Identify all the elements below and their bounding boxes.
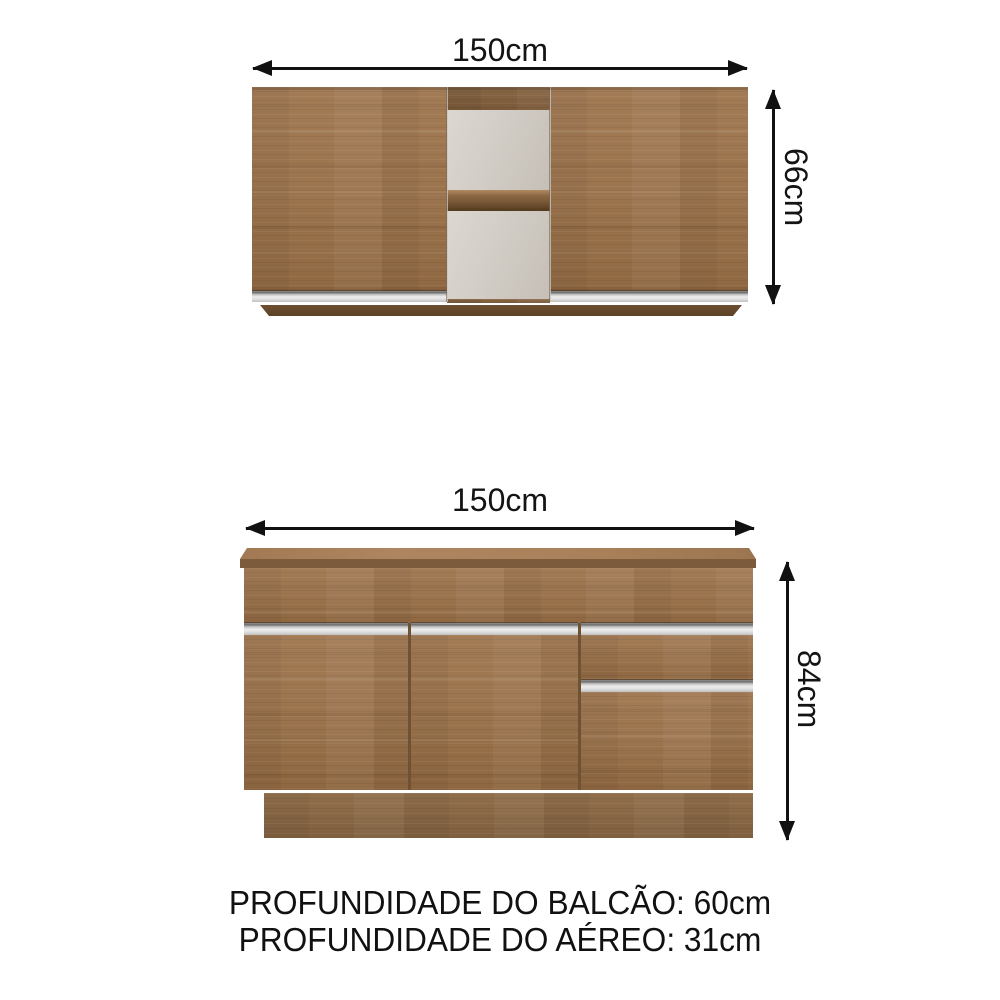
countertop-surface xyxy=(240,548,756,559)
arrow-right-head-icon xyxy=(735,520,755,536)
upper-door-seam xyxy=(549,87,551,302)
upper-height-arrow xyxy=(772,90,775,304)
lower-middle-door-handle xyxy=(411,623,578,635)
lower-left-door xyxy=(244,635,408,790)
upper-cabinet-top-edge xyxy=(252,87,748,90)
arrow-right-head-icon xyxy=(728,60,748,76)
niche-bottom-band xyxy=(447,299,550,303)
arrow-left-head-icon xyxy=(252,60,272,76)
arrow-up-head-icon xyxy=(779,561,795,581)
lower-left-door-handle xyxy=(244,623,408,635)
upper-cabinet-underside xyxy=(260,305,742,316)
plinth xyxy=(264,793,753,838)
arrow-down-head-icon xyxy=(765,285,781,305)
aereo-depth-text: PROFUNDIDADE DO AÉREO: 31cm xyxy=(20,921,980,958)
upper-left-door-handle xyxy=(252,291,447,302)
upper-open-shelves xyxy=(447,87,550,303)
lower-width-arrow xyxy=(246,527,754,530)
lower-right-section xyxy=(581,623,753,790)
lower-middle-door xyxy=(411,635,578,790)
upper-cabinet xyxy=(252,87,748,303)
lower-width-label: 150cm xyxy=(245,484,755,516)
upper-width-label: 150cm xyxy=(252,34,748,66)
arrow-up-head-icon xyxy=(765,89,781,109)
niche-upper-compartment xyxy=(447,110,550,190)
upper-door-seam xyxy=(446,87,448,302)
lower-cabinet-body xyxy=(244,568,753,790)
lower-height-arrow xyxy=(786,562,789,840)
upper-left-door xyxy=(252,87,447,302)
lower-drawer-front xyxy=(581,635,753,680)
arrow-left-head-icon xyxy=(245,520,265,536)
upper-right-door xyxy=(550,87,748,302)
arrow-down-head-icon xyxy=(779,821,795,841)
lower-right-door-handle xyxy=(581,680,753,692)
lower-left-door-section xyxy=(244,623,408,790)
niche-top-band xyxy=(447,87,550,110)
upper-height-label: 66cm xyxy=(780,148,812,226)
lower-apron-panel xyxy=(244,568,753,623)
lower-middle-door-section xyxy=(411,623,578,790)
niche-lower-compartment xyxy=(447,211,550,299)
countertop xyxy=(240,548,756,568)
niche-shelf xyxy=(447,190,550,211)
lower-drawer-handle xyxy=(581,623,753,635)
balcao-depth-text: PROFUNDIDADE DO BALCÃO: 60cm xyxy=(20,884,980,921)
lower-height-label: 84cm xyxy=(793,650,825,728)
lower-right-door xyxy=(581,692,753,790)
upper-right-door-handle xyxy=(550,291,748,302)
countertop-front-edge xyxy=(240,559,756,568)
upper-width-arrow xyxy=(253,67,747,70)
depth-notes: PROFUNDIDADE DO BALCÃO: 60cm PROFUNDIDAD… xyxy=(0,884,1000,958)
diagram-canvas: 150cm 66cm 150cm xyxy=(0,0,1000,1000)
